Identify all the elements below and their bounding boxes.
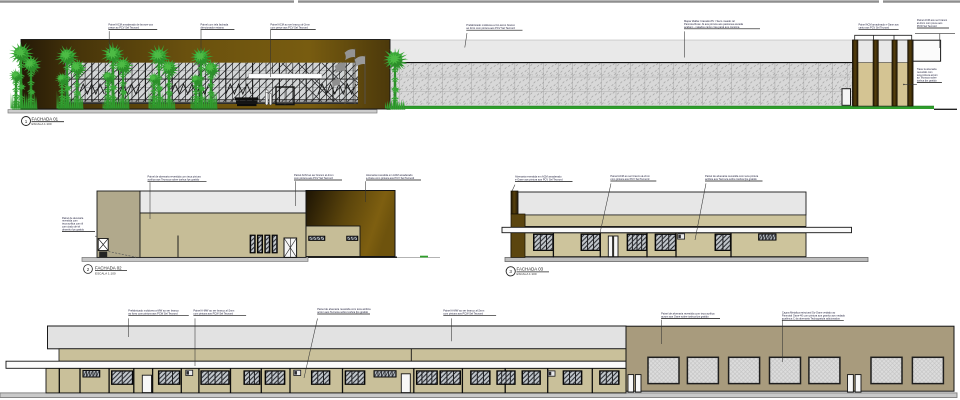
svg-text:ESCALA 1:100: ESCALA 1:100 — [517, 272, 537, 276]
svg-text:Painel de alvenariarevestida c: Painel de alvenariarevestida comteca acr… — [62, 217, 85, 232]
svg-text:Painel A-MW ao ser branco al-2: Painel A-MW ao ser branco al-2mmcom pint… — [193, 308, 234, 315]
svg-text:Tiane la alvenariarevestido co: Tiane la alvenariarevestido comteca pint… — [917, 68, 938, 83]
svg-text:Alvenaria revestida em ACM ama: Alvenaria revestida em ACM amaderadoe-Oa… — [366, 173, 415, 180]
svg-text:Prefabricado moldurea a CA-tec: Prefabricado moldurea a CA-tecno brancoa… — [466, 23, 515, 30]
svg-text:Painel de alvenaria revestida: Painel de alvenaria revestida com teca p… — [705, 174, 759, 181]
svg-text:Painel ACM ao ser branco al-2m: Painel ACM ao ser branco al-2mmcom pintu… — [294, 173, 334, 180]
svg-text:FACHADA 01: FACHADA 01 — [32, 116, 59, 121]
svg-text:Painel de alvenaria revestida: Painel de alvenaria revestida com teca a… — [661, 311, 715, 318]
svg-text:Painel ACM ao ser branco al-2m: Painel ACM ao ser branco al-2mmcom prece… — [270, 23, 310, 30]
svg-text:Prefabricado moldurea a-MW ao: Prefabricado moldurea a-MW ao ser branco… — [128, 308, 179, 315]
svg-text:1: 1 — [25, 119, 28, 124]
svg-text:Painel A-MW ao ser branco al-2: Painel A-MW ao ser branco al-2mmcom pint… — [443, 308, 484, 315]
svg-text:ESCALA 1:100: ESCALA 1:100 — [32, 122, 52, 126]
svg-text:Painel de alvenaria revestida: Painel de alvenaria revestida com teca p… — [148, 174, 202, 181]
svg-text:2: 2 — [87, 267, 90, 272]
svg-text:FACHADA 02: FACHADA 02 — [95, 265, 122, 270]
svg-text:ESCALA 1:100: ESCALA 1:100 — [95, 271, 116, 275]
svg-text:Mapa/ Idalba: bracado-PU / Sec: Mapa/ Idalba: bracado-PU / Seco meado ra… — [684, 19, 744, 29]
svg-text:3: 3 — [509, 269, 512, 274]
svg-text:Painel de alvenaria revestida: Painel de alvenaria revestida com teca a… — [317, 307, 371, 314]
svg-text:Alvenaria revestida em ACM ama: Alvenaria revestida em ACM amaderadoe-Oa… — [515, 175, 563, 182]
svg-text:FACHADA 03: FACHADA 03 — [517, 267, 544, 272]
svg-text:Painel ACM ao ser branco al-2m: Painel ACM ao ser branco al-2mmcom pintu… — [610, 174, 650, 181]
